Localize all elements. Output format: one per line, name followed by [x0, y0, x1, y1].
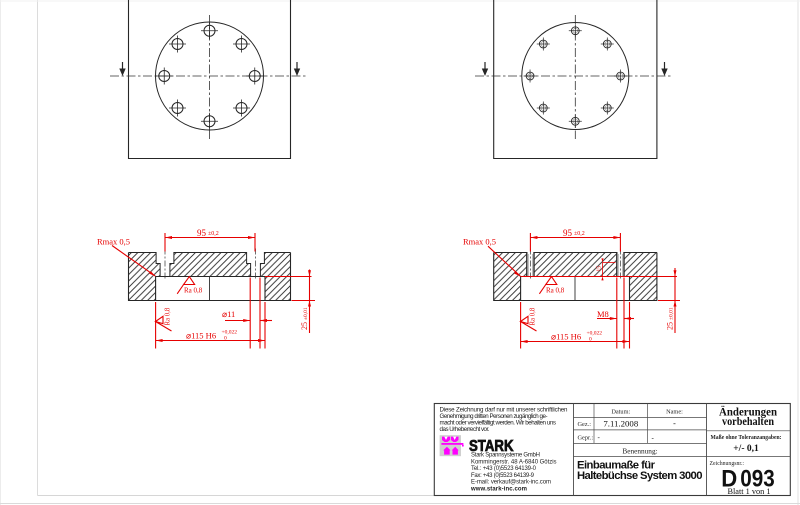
svg-text:±0,2: ±0,2 — [574, 231, 585, 237]
svg-text:M8: M8 — [597, 309, 609, 319]
svg-text:Gez.:: Gez.: — [578, 421, 592, 428]
svg-text:±0,2: ±0,2 — [208, 231, 219, 237]
svg-text:Ra 0,8: Ra 0,8 — [184, 287, 203, 295]
svg-text:0: 0 — [224, 336, 227, 342]
svg-text:15: 15 — [596, 266, 602, 272]
svg-text:Tel.: +43 (0)5523 64139-0: Tel.: +43 (0)5523 64139-0 — [471, 466, 537, 472]
svg-text:Benennung:: Benennung: — [622, 446, 657, 455]
svg-text:E-mail: verkauf@stark-inc.com: E-mail: verkauf@stark-inc.com — [471, 480, 551, 486]
svg-text:Fax: +43 (0)5523 64139-9: Fax: +43 (0)5523 64139-9 — [471, 473, 535, 479]
svg-text:Rmax 0,5: Rmax 0,5 — [463, 236, 496, 246]
svg-text:95: 95 — [197, 228, 207, 238]
svg-text:7.11.2008: 7.11.2008 — [603, 419, 638, 429]
svg-text:Kommingerstr. 48 A-6840 Götzis: Kommingerstr. 48 A-6840 Götzis — [471, 459, 557, 465]
svg-text:Gepr.:: Gepr.: — [578, 434, 594, 441]
svg-text:Blatt 1 von 1: Blatt 1 von 1 — [727, 487, 770, 496]
svg-text:Haltebüchse System 3000: Haltebüchse System 3000 — [577, 470, 703, 482]
svg-text:0: 0 — [589, 337, 592, 343]
svg-text:das Urheberrecht vor.: das Urheberrecht vor. — [440, 426, 490, 433]
svg-text:Name:: Name: — [666, 409, 683, 416]
svg-text:www.stark-inc.com: www.stark-inc.com — [470, 487, 527, 493]
svg-text:Ra 0,8: Ra 0,8 — [546, 287, 565, 295]
svg-text:Datum:: Datum: — [611, 409, 630, 416]
svg-text:vorbehalten: vorbehalten — [722, 416, 775, 428]
svg-text:Ra 0,8: Ra 0,8 — [530, 307, 537, 325]
svg-text:Maße ohne Toleranzangaben:: Maße ohne Toleranzangaben: — [711, 434, 782, 441]
svg-text:-: - — [673, 419, 676, 428]
svg-text:Rmax 0,5: Rmax 0,5 — [97, 236, 130, 246]
svg-text:⌀115 H6: ⌀115 H6 — [551, 332, 581, 342]
svg-text:⌀115 H6: ⌀115 H6 — [186, 330, 216, 340]
svg-text:Stark Spannsysteme GmbH: Stark Spannsysteme GmbH — [471, 453, 540, 459]
svg-text:+/- 0,1: +/- 0,1 — [733, 444, 759, 454]
svg-text:95: 95 — [563, 228, 573, 238]
svg-text:⌀11: ⌀11 — [222, 309, 235, 319]
svg-text:Ra 0,8: Ra 0,8 — [165, 307, 172, 325]
